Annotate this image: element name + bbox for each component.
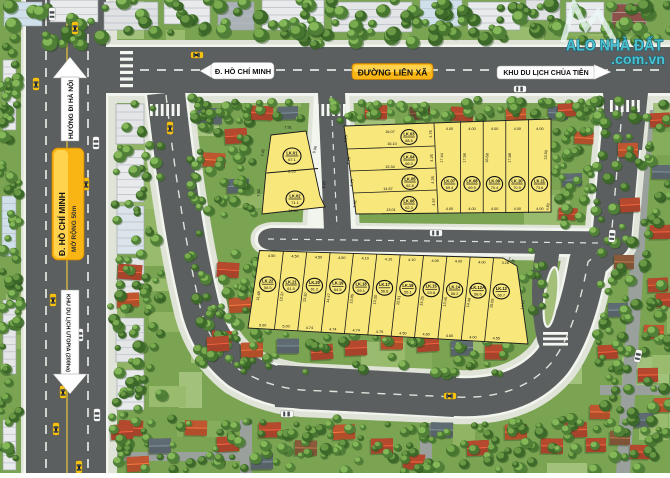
svg-text:4.50: 4.50 bbox=[315, 255, 322, 259]
svg-text:71.1: 71.1 bbox=[291, 200, 299, 205]
svg-text:4.10: 4.10 bbox=[361, 257, 368, 261]
svg-text:4.00: 4.00 bbox=[446, 127, 453, 131]
svg-text:4.00: 4.00 bbox=[514, 127, 521, 131]
svg-text:LK.19: LK.19 bbox=[332, 281, 344, 286]
svg-text:4.00: 4.00 bbox=[468, 207, 475, 211]
svg-text:70.4: 70.4 bbox=[491, 185, 499, 190]
svg-text:4.50: 4.50 bbox=[291, 255, 298, 259]
svg-text:LK.02: LK.02 bbox=[289, 193, 301, 198]
svg-text:.com.vn: .com.vn bbox=[611, 52, 665, 67]
svg-text:14.57: 14.57 bbox=[383, 187, 393, 191]
svg-text:13.01: 13.01 bbox=[386, 208, 396, 212]
svg-text:4.00: 4.00 bbox=[468, 127, 475, 131]
svg-text:4.25: 4.25 bbox=[344, 135, 349, 143]
svg-text:LK.10: LK.10 bbox=[511, 178, 523, 183]
svg-text:62.8: 62.8 bbox=[406, 183, 414, 188]
svg-text:68.5: 68.5 bbox=[405, 138, 413, 143]
svg-text:LK.12: LK.12 bbox=[496, 286, 508, 291]
svg-text:LK.01: LK.01 bbox=[286, 150, 298, 155]
svg-text:4.00: 4.00 bbox=[432, 259, 439, 263]
svg-text:4.25: 4.25 bbox=[350, 179, 355, 187]
svg-text:5.00: 5.00 bbox=[259, 323, 266, 327]
svg-text:53.8: 53.8 bbox=[427, 290, 435, 295]
svg-text:LK.09: LK.09 bbox=[489, 178, 501, 183]
svg-text:4.75: 4.75 bbox=[376, 330, 383, 334]
svg-text:67.1: 67.1 bbox=[288, 157, 296, 162]
svg-text:16.68: 16.68 bbox=[485, 153, 489, 163]
svg-text:17.88: 17.88 bbox=[508, 153, 512, 163]
svg-text:4.00: 4.00 bbox=[536, 207, 543, 211]
svg-text:61.2: 61.2 bbox=[311, 287, 319, 292]
svg-text:LK.15: LK.15 bbox=[426, 284, 438, 289]
svg-text:13.90: 13.90 bbox=[544, 150, 549, 160]
svg-text:55.1: 55.1 bbox=[404, 289, 412, 294]
svg-text:4.10: 4.10 bbox=[385, 257, 392, 261]
svg-text:ĐƯỜNG LIÊN XÃ: ĐƯỜNG LIÊN XÃ bbox=[358, 67, 428, 78]
svg-text:69.4: 69.4 bbox=[446, 185, 454, 190]
svg-text:4.00: 4.00 bbox=[514, 207, 521, 211]
svg-text:LK.22: LK.22 bbox=[262, 279, 274, 284]
svg-text:4.00: 4.00 bbox=[469, 335, 476, 339]
svg-text:3.26: 3.26 bbox=[502, 261, 509, 265]
svg-text:4.50: 4.50 bbox=[399, 331, 406, 335]
svg-text:16.10: 16.10 bbox=[387, 142, 397, 146]
svg-text:4.60: 4.60 bbox=[423, 333, 430, 337]
svg-text:16.07: 16.07 bbox=[385, 130, 395, 134]
svg-text:4.10: 4.10 bbox=[408, 258, 415, 262]
svg-text:4.00: 4.00 bbox=[446, 207, 453, 211]
svg-text:15.34: 15.34 bbox=[385, 165, 395, 169]
svg-text:LK.16: LK.16 bbox=[402, 283, 414, 288]
svg-text:4.57: 4.57 bbox=[432, 198, 436, 206]
svg-text:MỞ RỘNG 50m: MỞ RỘNG 50m bbox=[69, 205, 78, 252]
svg-text:4.00: 4.00 bbox=[536, 127, 543, 131]
svg-text:LK.06: LK.06 bbox=[403, 198, 415, 203]
svg-text:4.55: 4.55 bbox=[493, 337, 500, 341]
svg-text:3.62: 3.62 bbox=[353, 200, 358, 208]
svg-text:62.3: 62.3 bbox=[405, 205, 413, 210]
svg-text:70.9: 70.9 bbox=[513, 185, 521, 190]
svg-text:4.00: 4.00 bbox=[455, 260, 462, 264]
svg-text:16.54: 16.54 bbox=[288, 209, 298, 213]
svg-text:4.25: 4.25 bbox=[431, 176, 435, 184]
svg-text:LK.03: LK.03 bbox=[403, 131, 415, 136]
svg-text:4.25: 4.25 bbox=[347, 157, 352, 165]
svg-text:56.6: 56.6 bbox=[381, 289, 389, 294]
svg-text:66.7: 66.7 bbox=[498, 292, 506, 297]
svg-text:4.74: 4.74 bbox=[329, 327, 336, 331]
svg-text:LK.17: LK.17 bbox=[379, 282, 391, 287]
svg-text:LK.11: LK.11 bbox=[534, 178, 546, 183]
svg-text:LK.12A: LK.12A bbox=[471, 285, 485, 290]
svg-text:LK.20: LK.20 bbox=[309, 280, 321, 285]
svg-text:64.5: 64.5 bbox=[334, 287, 342, 292]
svg-text:4.74: 4.74 bbox=[352, 329, 359, 333]
svg-text:73.6: 73.6 bbox=[536, 185, 544, 190]
svg-text:58.6: 58.6 bbox=[474, 292, 482, 297]
svg-text:KHU DU LỊCH UTOPIA (200ha): KHU DU LỊCH UTOPIA (200ha) bbox=[65, 294, 71, 372]
svg-text:58.5: 58.5 bbox=[264, 285, 272, 290]
svg-text:17.56: 17.56 bbox=[462, 153, 466, 163]
svg-text:4.50: 4.50 bbox=[338, 256, 345, 260]
svg-text:KHU DU LỊCH CHÙA TIÊN: KHU DU LỊCH CHÙA TIÊN bbox=[503, 68, 588, 77]
svg-text:7.80: 7.80 bbox=[257, 189, 261, 197]
svg-text:17.44: 17.44 bbox=[440, 153, 444, 163]
svg-text:4.50: 4.50 bbox=[268, 254, 275, 258]
svg-text:4.75: 4.75 bbox=[429, 130, 433, 138]
svg-text:56.2: 56.2 bbox=[451, 291, 459, 296]
svg-text:61.0: 61.0 bbox=[287, 286, 295, 291]
svg-text:LK.21: LK.21 bbox=[286, 279, 298, 284]
svg-text:LK.05: LK.05 bbox=[404, 176, 416, 181]
svg-text:Đ. HỒ CHÍ MINH: Đ. HỒ CHÍ MINH bbox=[56, 192, 67, 256]
svg-text:4.00: 4.00 bbox=[491, 207, 498, 211]
svg-text:LK.07: LK.07 bbox=[444, 178, 456, 183]
svg-text:4.60: 4.60 bbox=[446, 334, 453, 338]
svg-text:8.53: 8.53 bbox=[288, 170, 295, 174]
svg-text:LK.04: LK.04 bbox=[403, 154, 415, 159]
svg-text:66.0: 66.0 bbox=[405, 161, 413, 166]
svg-text:HƯỚNG ĐI HÀ NỘI: HƯỚNG ĐI HÀ NỘI bbox=[66, 80, 75, 139]
svg-text:69.9: 69.9 bbox=[468, 185, 476, 190]
svg-text:59.1: 59.1 bbox=[357, 288, 365, 293]
svg-text:4.00: 4.00 bbox=[491, 127, 498, 131]
svg-text:LK.18: LK.18 bbox=[356, 281, 368, 286]
svg-text:LK.14: LK.14 bbox=[449, 284, 461, 289]
svg-text:7.91: 7.91 bbox=[284, 126, 291, 130]
svg-text:Đ. HỒ CHÍ MINH: Đ. HỒ CHÍ MINH bbox=[215, 66, 271, 76]
svg-text:4.74: 4.74 bbox=[306, 326, 313, 330]
svg-text:4.25: 4.25 bbox=[430, 154, 434, 162]
svg-text:LK.08: LK.08 bbox=[466, 178, 478, 183]
svg-text:5.00: 5.00 bbox=[282, 325, 289, 329]
svg-text:4.00: 4.00 bbox=[478, 260, 485, 264]
